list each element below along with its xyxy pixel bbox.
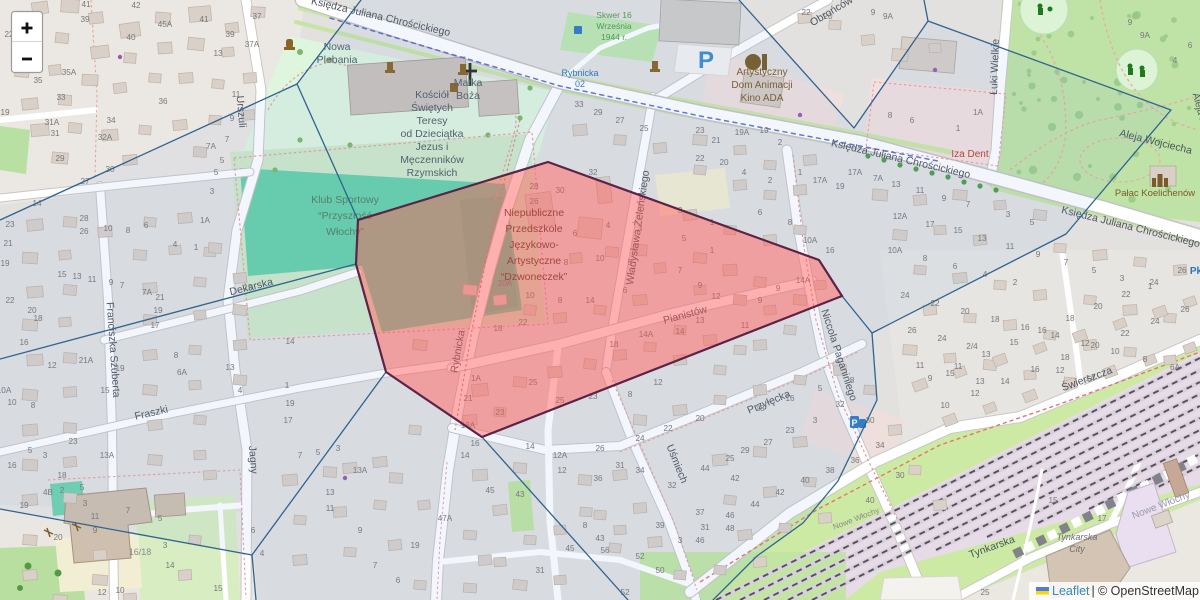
svg-text:42: 42 <box>131 1 141 10</box>
svg-text:16: 16 <box>1020 323 1030 332</box>
svg-text:31A: 31A <box>45 118 60 127</box>
svg-text:10: 10 <box>1110 347 1120 356</box>
svg-text:9A: 9A <box>883 12 894 21</box>
svg-text:Językowo-: Językowo- <box>509 239 559 251</box>
svg-text:41: 41 <box>81 0 91 9</box>
svg-text:15: 15 <box>1009 338 1019 347</box>
svg-text:24: 24 <box>1150 317 1160 326</box>
svg-text:34: 34 <box>875 441 885 450</box>
svg-text:9: 9 <box>871 8 876 17</box>
svg-text:40: 40 <box>126 33 136 42</box>
svg-text:39: 39 <box>80 15 90 24</box>
svg-text:12: 12 <box>97 588 107 597</box>
svg-text:29: 29 <box>55 154 65 163</box>
svg-text:45A: 45A <box>158 20 173 29</box>
svg-text:16: 16 <box>1030 365 1040 374</box>
svg-text:9: 9 <box>928 374 933 383</box>
svg-text:9A: 9A <box>1140 31 1151 40</box>
svg-text:2: 2 <box>1013 278 1018 287</box>
svg-text:31: 31 <box>50 129 60 138</box>
svg-text:3: 3 <box>1120 274 1125 283</box>
svg-text:5: 5 <box>1092 266 1097 275</box>
svg-text:11: 11 <box>916 361 925 370</box>
svg-text:“Dzwoneczek”: “Dzwoneczek” <box>501 271 568 283</box>
svg-text:12: 12 <box>1055 366 1065 375</box>
svg-text:24: 24 <box>1149 278 1159 287</box>
svg-text:15: 15 <box>213 584 223 593</box>
svg-text:15: 15 <box>1048 496 1058 505</box>
svg-text:33: 33 <box>56 93 66 102</box>
svg-text:19: 19 <box>0 108 10 117</box>
svg-text:35: 35 <box>33 76 43 85</box>
svg-text:37A: 37A <box>245 40 260 49</box>
svg-text:14: 14 <box>1085 374 1095 383</box>
svg-text:41: 41 <box>199 15 209 24</box>
svg-text:18: 18 <box>1065 314 1075 323</box>
svg-text:14: 14 <box>1050 331 1060 340</box>
svg-text:14: 14 <box>1000 377 1010 386</box>
svg-text:25: 25 <box>980 588 990 597</box>
svg-text:20: 20 <box>823 12 833 21</box>
svg-text:30: 30 <box>895 471 905 480</box>
svg-text:35A: 35A <box>62 68 77 77</box>
svg-text:© OpenStreetMap: © OpenStreetMap <box>1098 584 1199 598</box>
svg-text:13: 13 <box>213 49 223 58</box>
svg-text:9: 9 <box>1036 250 1041 259</box>
svg-text:32A: 32A <box>98 133 113 142</box>
svg-text:13: 13 <box>975 377 985 386</box>
svg-text:7: 7 <box>1064 258 1069 267</box>
svg-text:City: City <box>1069 544 1085 554</box>
svg-text:Tynkarska: Tynkarska <box>1057 532 1098 542</box>
svg-text:4: 4 <box>1173 56 1178 65</box>
svg-text:Artystyczne: Artystyczne <box>507 255 561 267</box>
svg-text:3: 3 <box>163 541 168 550</box>
svg-text:22: 22 <box>1121 290 1131 299</box>
svg-text:Pk: Pk <box>1190 266 1200 277</box>
svg-text:39: 39 <box>225 30 235 39</box>
svg-text:6A: 6A <box>1170 363 1181 372</box>
svg-text:14: 14 <box>165 561 175 570</box>
svg-text:16/18: 16/18 <box>129 547 152 557</box>
svg-text:22: 22 <box>1120 329 1130 338</box>
svg-text:26: 26 <box>1177 266 1187 275</box>
svg-text:20: 20 <box>1090 341 1100 350</box>
svg-text:10: 10 <box>940 401 950 410</box>
svg-text:8: 8 <box>1143 355 1148 364</box>
svg-text:Przedszkole: Przedszkole <box>505 223 562 235</box>
svg-text:13: 13 <box>981 350 991 359</box>
svg-text:Pałac Koelichenów: Pałac Koelichenów <box>1115 188 1195 199</box>
svg-text:6: 6 <box>1188 41 1193 50</box>
svg-text:Leaflet: Leaflet <box>1052 584 1090 598</box>
svg-text:34: 34 <box>106 116 116 125</box>
svg-text:18: 18 <box>990 315 1000 324</box>
svg-text:12: 12 <box>1080 339 1090 348</box>
svg-text:16: 16 <box>1037 326 1047 335</box>
svg-text:17: 17 <box>1097 514 1107 523</box>
svg-text:22: 22 <box>801 8 811 17</box>
svg-text:20: 20 <box>960 307 970 316</box>
svg-text:9: 9 <box>1128 18 1133 27</box>
svg-text:12: 12 <box>970 389 980 398</box>
svg-text:26: 26 <box>1180 305 1190 314</box>
svg-text:|: | <box>1092 584 1095 598</box>
svg-text:26: 26 <box>907 326 917 335</box>
svg-text:36: 36 <box>158 97 168 106</box>
svg-text:37: 37 <box>252 12 262 21</box>
svg-text:36: 36 <box>850 456 860 465</box>
svg-text:24: 24 <box>937 334 947 343</box>
svg-text:2/4: 2/4 <box>966 342 978 351</box>
svg-text:11: 11 <box>954 362 963 371</box>
svg-text:20: 20 <box>53 533 63 542</box>
svg-text:40: 40 <box>865 496 875 505</box>
svg-text:20: 20 <box>1093 302 1103 311</box>
svg-text:11: 11 <box>232 90 241 99</box>
svg-text:Niepubliczne: Niepubliczne <box>504 207 564 219</box>
svg-text:10: 10 <box>115 586 125 595</box>
svg-text:18: 18 <box>1060 353 1070 362</box>
